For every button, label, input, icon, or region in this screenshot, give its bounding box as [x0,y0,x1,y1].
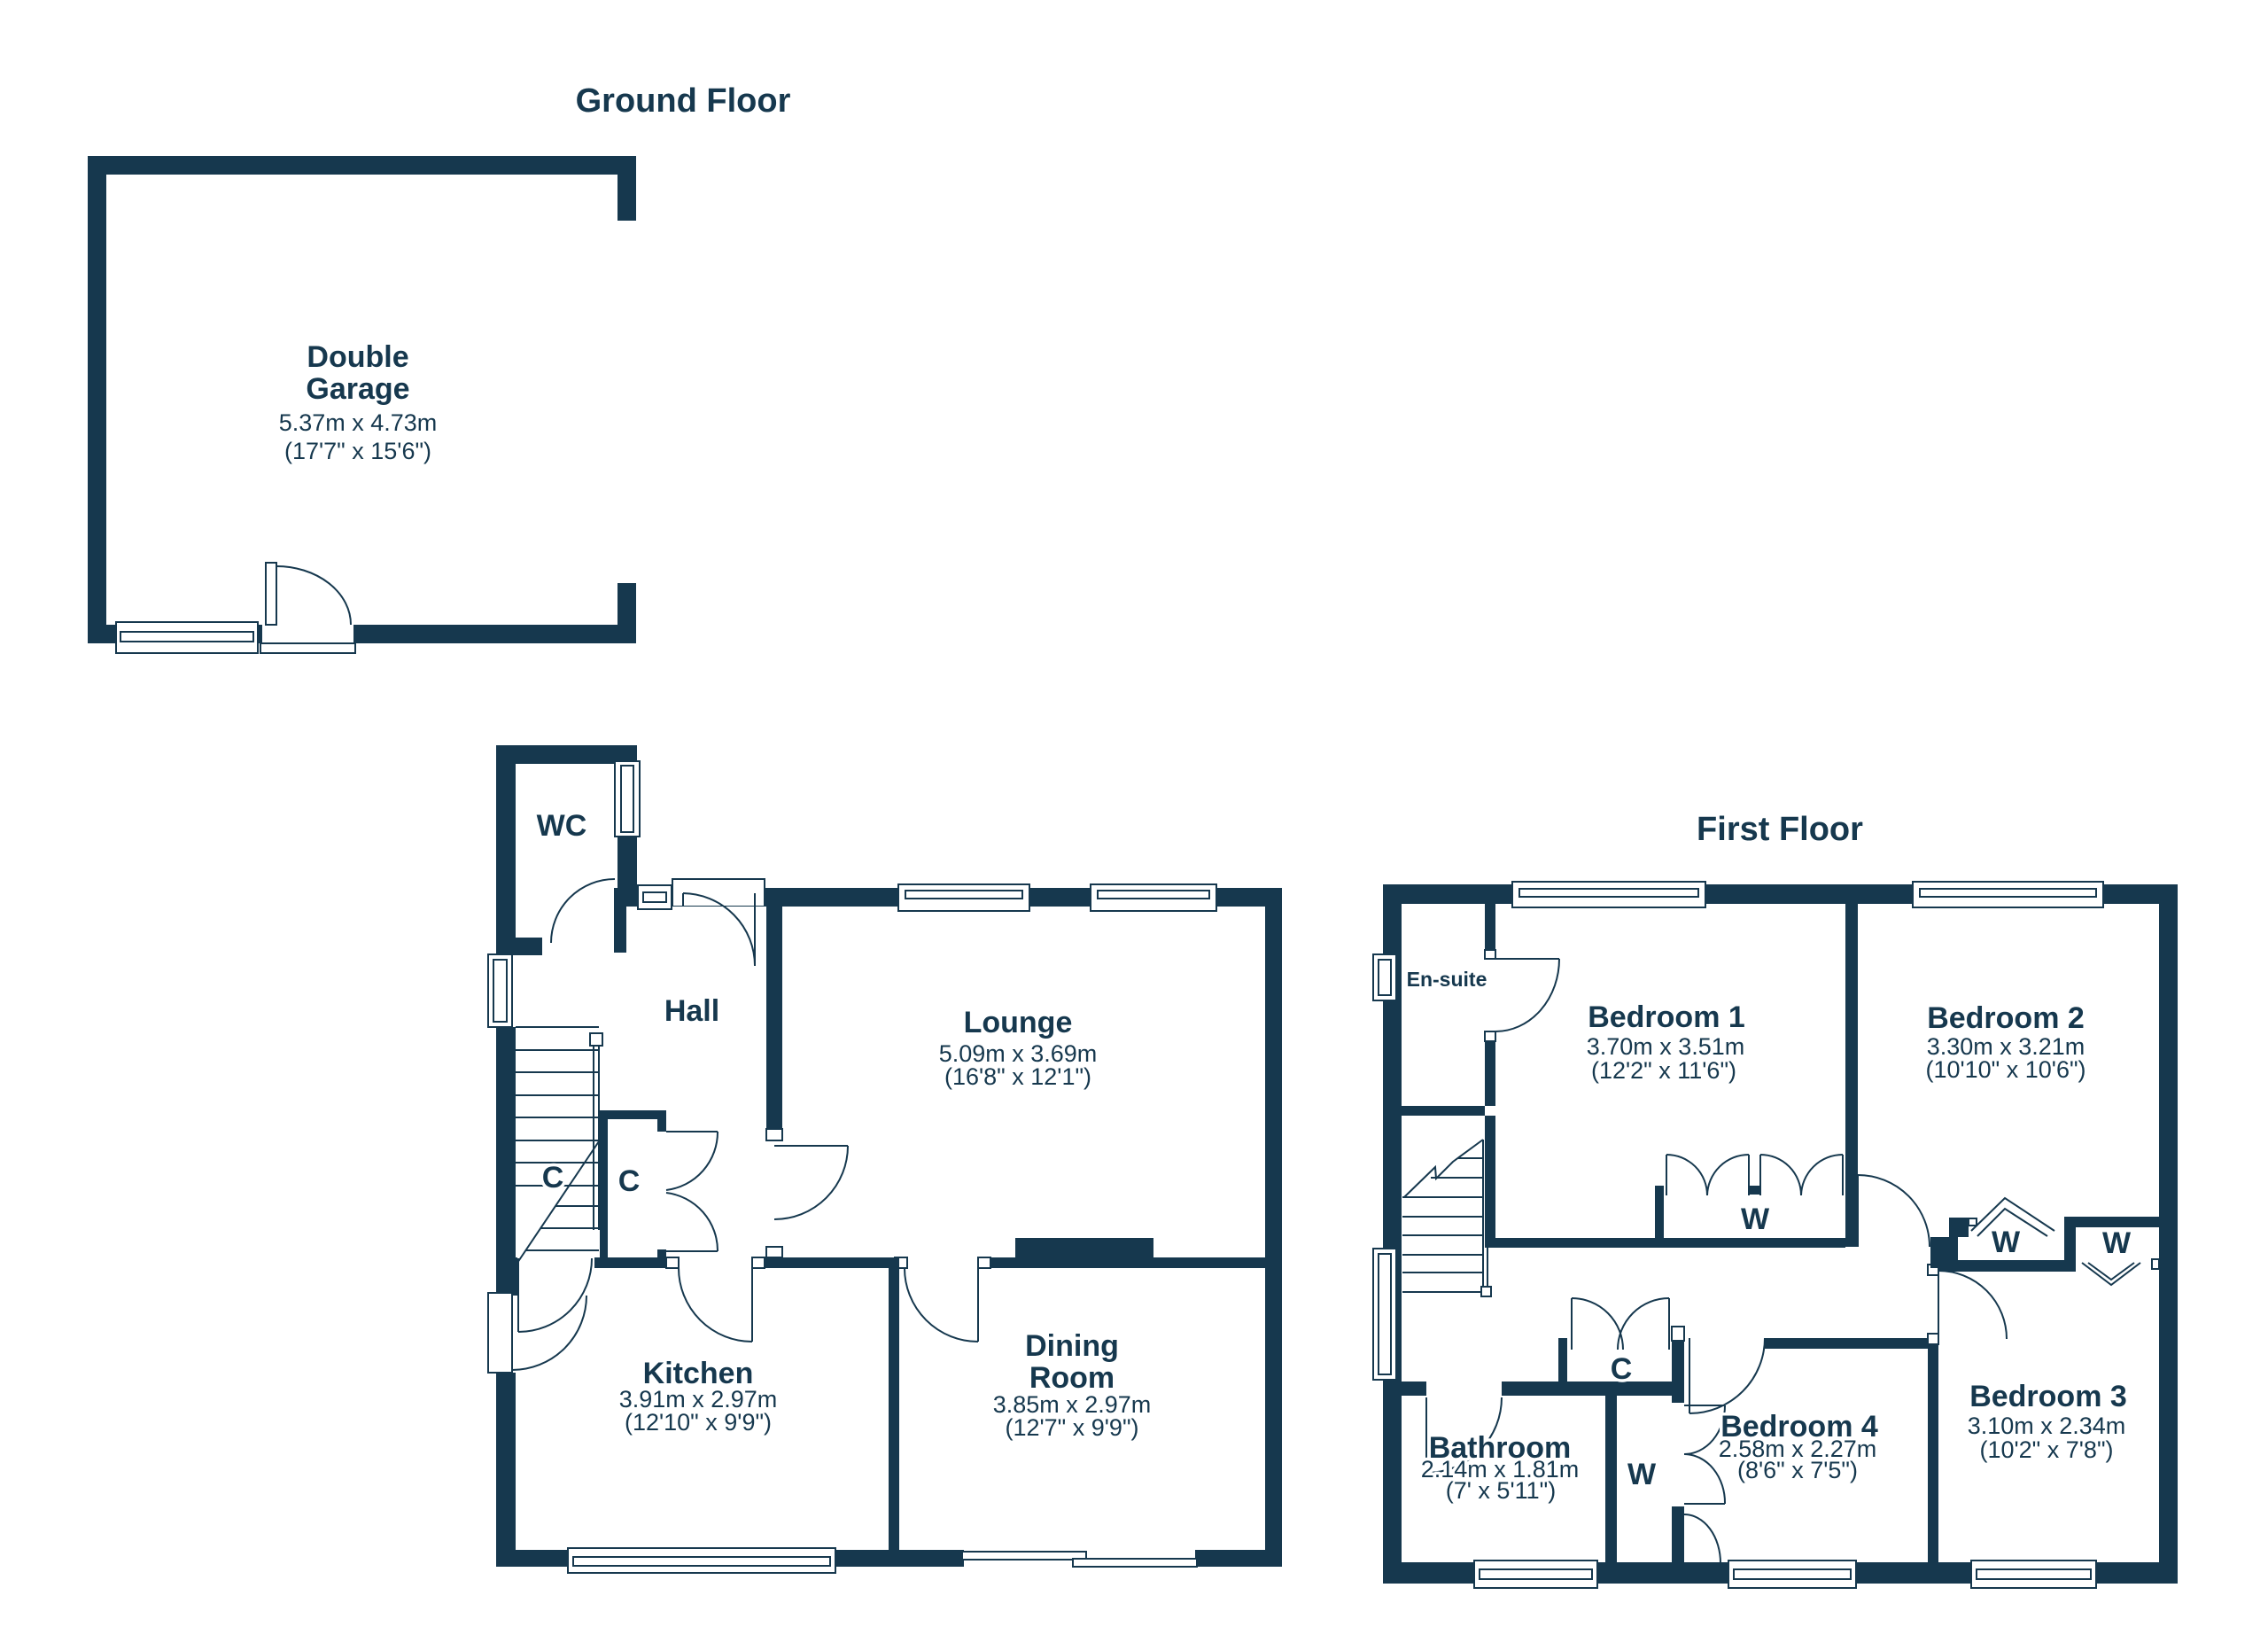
svg-text:First Floor: First Floor [1697,811,1863,848]
svg-text:(10'2" x 7'8"): (10'2" x 7'8") [1979,1436,2113,1463]
svg-text:3.10m x 2.34m: 3.10m x 2.34m [1968,1413,2126,1439]
svg-text:WC: WC [537,809,587,843]
svg-text:5.37m x 4.73m: 5.37m x 4.73m [279,409,438,436]
svg-text:Dining: Dining [1025,1329,1119,1363]
svg-text:En-suite: En-suite [1407,968,1487,991]
svg-text:C: C [618,1164,641,1198]
svg-text:W: W [1992,1226,2021,1259]
svg-text:Double: Double [307,340,408,374]
svg-text:W: W [1741,1202,1770,1236]
svg-text:Ground Floor: Ground Floor [576,82,791,120]
svg-text:C: C [1611,1352,1633,1386]
svg-text:(12'7" x 9'9"): (12'7" x 9'9") [1005,1414,1138,1441]
svg-text:Bedroom 1: Bedroom 1 [1588,1000,1745,1034]
svg-text:W: W [1627,1458,1657,1491]
svg-text:(8'6" x 7'5"): (8'6" x 7'5") [1737,1457,1858,1483]
svg-text:Garage: Garage [306,372,409,406]
svg-text:(17'7" x 15'6"): (17'7" x 15'6") [284,438,431,464]
svg-text:(12'10" x 9'9"): (12'10" x 9'9") [625,1409,772,1436]
svg-text:Hall: Hall [664,994,719,1028]
svg-text:Room: Room [1029,1361,1115,1395]
svg-text:W: W [2102,1226,2132,1260]
svg-text:Bedroom 3: Bedroom 3 [1969,1380,2127,1413]
svg-text:Bedroom 2: Bedroom 2 [1927,1001,2085,1035]
svg-text:3.70m x 3.51m: 3.70m x 3.51m [1587,1033,1745,1060]
svg-text:C: C [542,1161,564,1195]
svg-text:(12'2" x 11'6"): (12'2" x 11'6") [1591,1057,1736,1084]
svg-text:(10'10" x 10'6"): (10'10" x 10'6") [1925,1056,2085,1083]
svg-text:Lounge: Lounge [964,1006,1073,1039]
svg-text:(16'8" x 12'1"): (16'8" x 12'1") [944,1063,1091,1090]
svg-text:(7' x 5'11"): (7' x 5'11") [1446,1477,1556,1504]
